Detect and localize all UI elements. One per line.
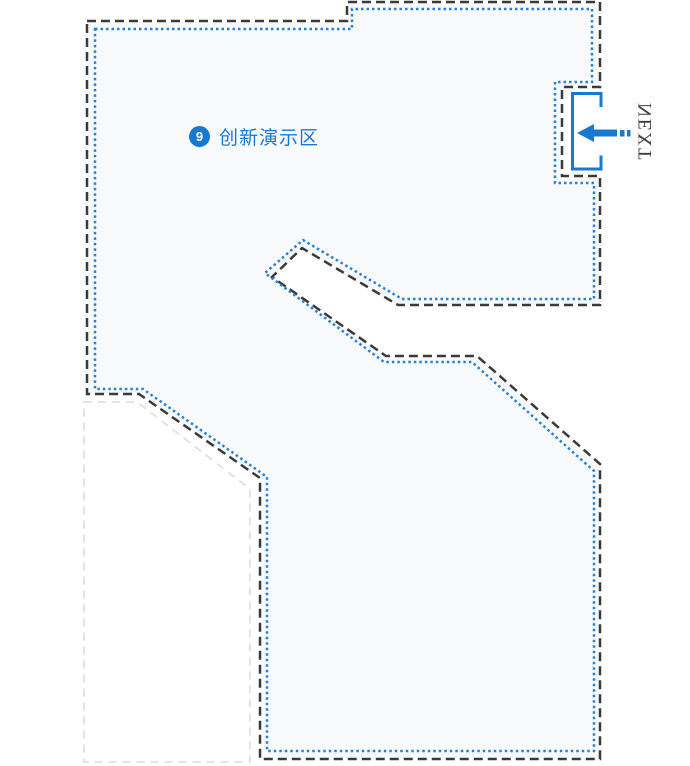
arrow-left-icon bbox=[577, 124, 617, 142]
area-number-badge: 9 bbox=[189, 126, 210, 147]
arrow-dotted-tail bbox=[620, 130, 631, 137]
floor-map-canvas bbox=[0, 0, 690, 766]
next-direction-label: NEXT bbox=[635, 103, 657, 169]
area-9-label-group[interactable]: 9 创新演示区 bbox=[189, 123, 319, 150]
area-name-text: 创新演示区 bbox=[219, 123, 319, 150]
floor-map: 9 创新演示区 NEXT bbox=[0, 0, 690, 766]
adjacent-area[interactable] bbox=[84, 402, 250, 762]
